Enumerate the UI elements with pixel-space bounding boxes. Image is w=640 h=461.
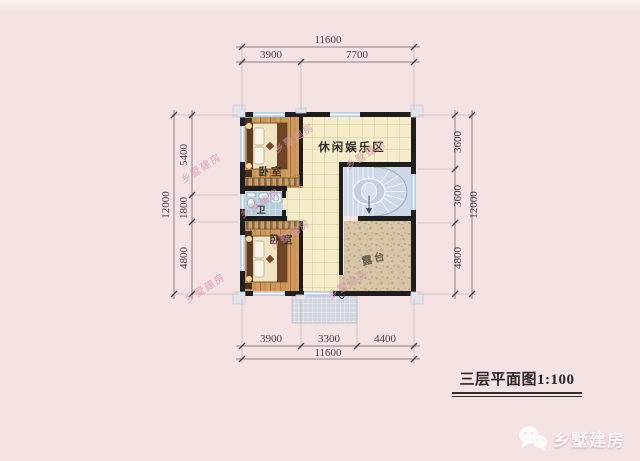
brand-logo: 乡墅建房 <box>518 423 625 453</box>
title-underline-thin <box>452 396 582 397</box>
stair-terrace-wall-left <box>339 162 343 275</box>
interior-wall <box>282 191 286 198</box>
brand-name: 乡墅建房 <box>553 426 625 451</box>
dim-left-seg3: 4800 <box>178 247 190 270</box>
title-underline-thick <box>452 392 582 394</box>
stair-wall-bottom <box>358 216 411 221</box>
dim-left-seg2: 1800 <box>178 197 190 220</box>
room-label-bedroom-top: 卧室 <box>259 165 284 178</box>
dim-bottom-seg2: 3300 <box>318 333 341 345</box>
drawing-title-block: 三层平面图1:100 <box>452 368 582 397</box>
window <box>240 194 245 209</box>
dim-bottom-seg1: 3900 <box>260 333 283 345</box>
window <box>253 112 285 117</box>
dim-right-seg2: 3600 <box>452 185 464 208</box>
interior-wall <box>240 186 287 191</box>
screenshot-canvas: 休闲娱乐区 卧室 卧室 卫 露台 <box>0 0 640 461</box>
dim-left-overall: 12000 <box>160 191 172 219</box>
dim-right-seg3: 4800 <box>452 247 464 270</box>
dim-top-seg2: 7700 <box>346 49 369 61</box>
watermark-text: 乡墅建房 <box>182 270 228 306</box>
window <box>253 291 285 296</box>
window <box>240 126 245 162</box>
window <box>240 235 245 271</box>
dim-top-seg1: 3900 <box>260 49 283 61</box>
dim-top-overall: 11600 <box>314 34 342 46</box>
dim-left-seg1: 5400 <box>178 144 190 167</box>
page-title: 三层平面图1:100 <box>452 368 582 389</box>
dim-right-overall: 12000 <box>468 191 480 219</box>
window <box>330 112 360 117</box>
dim-bottom-seg3: 4400 <box>374 333 397 345</box>
dim-bottom-overall: 11600 <box>314 347 342 359</box>
window <box>411 174 416 210</box>
wechat-icon <box>518 425 548 452</box>
dim-right-seg1: 3600 <box>452 131 464 154</box>
interior-wall <box>282 210 286 216</box>
